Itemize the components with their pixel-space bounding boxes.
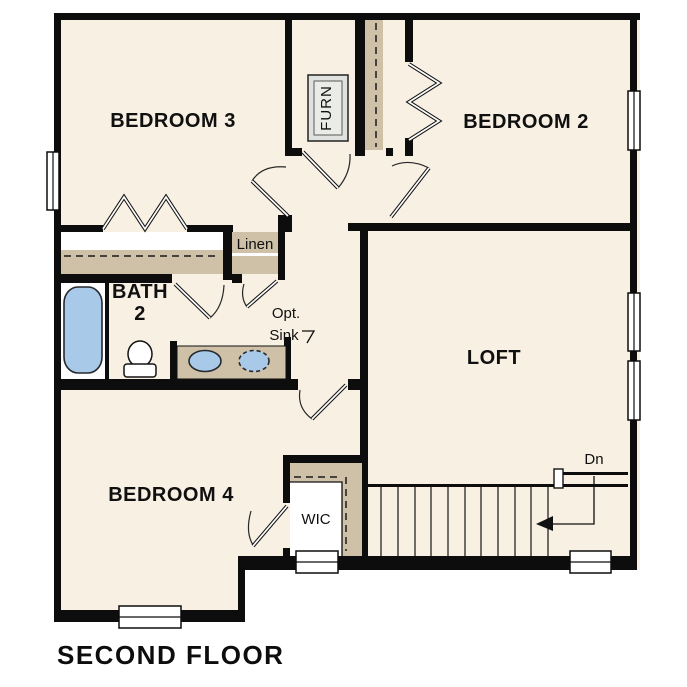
opt-sink-label-line1: Opt. [272,305,300,322]
wic-window [296,551,338,573]
landing-edge [561,472,628,475]
stair-newel-post [554,469,563,488]
wall-tub-partition [105,283,109,380]
wall-outer-top [54,13,640,20]
bath-label-line2: 2 [134,303,146,325]
wall-loft-north [348,223,637,231]
loft-label: LOFT [467,347,521,369]
wall-br2closet-east-top [405,20,413,62]
bathtub [64,287,102,373]
bath-label-line1: BATH [112,281,168,303]
wall-br2closet-east-bottom [405,138,413,156]
wall-furn-south [285,148,302,156]
floor-plan: BEDROOM 3 BEDROOM 2 LOFT BEDROOM 4 BATH … [0,0,687,687]
bedroom4-label: BEDROOM 4 [108,484,234,506]
wall-linen-east-corner [278,215,292,232]
opt-sink-label-line2: Sink [269,327,299,344]
linen-shelf-edge [232,253,278,256]
bedroom4-window [119,606,181,628]
wall-hall-door-stub [386,148,393,156]
stairs-top-edge [365,484,628,487]
wall-wic-north [283,455,368,463]
toilet-tank [124,364,156,377]
wic-shelf-right [342,463,362,556]
page-title: SECOND FLOOR [57,640,284,670]
wall-outer-left [54,13,61,622]
optional-sink [239,351,269,372]
wall-vanity-west [170,341,177,380]
toilet-bowl [128,341,152,367]
wall-bedroom3-east [285,20,292,155]
bedroom2-closet-shelf [365,20,383,150]
bedroom3-label: BEDROOM 3 [110,110,236,132]
furnace-label: FURN [318,85,335,131]
bedroom3-closet-shelf [61,250,223,274]
wall-wic-west-stub [283,548,290,560]
wall-linen-east [278,232,285,280]
wall-bedroom3-south-a [57,225,103,232]
stairs-window [570,551,611,573]
wic-label: WIC [301,511,330,528]
wall-wic-west [283,455,290,503]
loft-window-lower [628,361,640,420]
wall-linen-west [223,225,232,280]
wall-furn-closet-divider [355,20,365,156]
loft-window-upper [628,293,640,351]
bedroom3-window [47,152,59,210]
wall-bath-north-stub [232,274,242,283]
linen-label: Linen [237,236,274,253]
wall-bath-south [57,379,298,390]
stairs-dn-label: Dn [584,451,603,468]
bedroom2-label: BEDROOM 2 [463,111,589,133]
sink [189,351,221,372]
bedroom2-window [628,91,640,150]
